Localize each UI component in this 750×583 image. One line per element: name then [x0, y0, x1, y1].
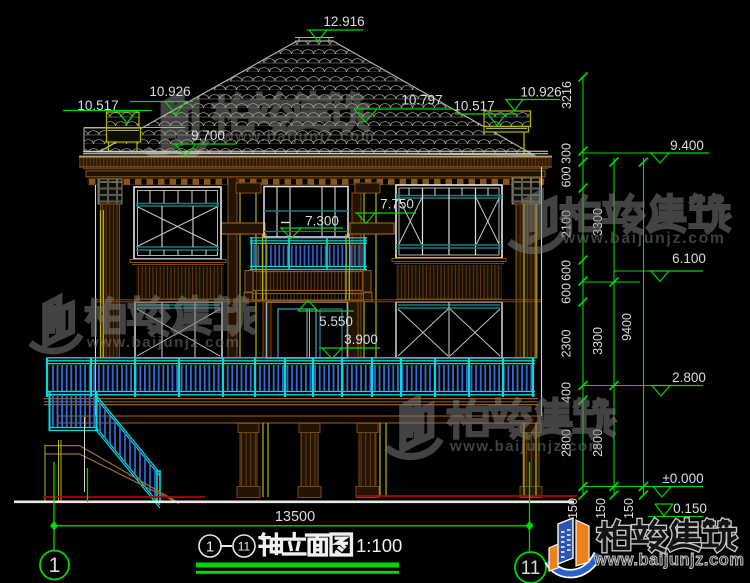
svg-text:±0.000: ±0.000: [662, 471, 703, 486]
svg-text:1: 1: [206, 539, 214, 556]
svg-text:www.baijunjz.com: www.baijunjz.com: [562, 230, 726, 247]
svg-text:600: 600: [560, 167, 574, 188]
svg-text:6.100: 6.100: [672, 251, 706, 266]
svg-text:0.150: 0.150: [673, 501, 707, 516]
svg-text:300: 300: [560, 143, 574, 164]
svg-text:150: 150: [566, 498, 580, 519]
svg-text:150: 150: [594, 498, 608, 519]
svg-text:www.baijunjz.com: www.baijunjz.com: [86, 334, 240, 351]
svg-text:9.400: 9.400: [670, 138, 704, 153]
svg-text:9400: 9400: [620, 313, 634, 341]
svg-text:150: 150: [622, 498, 636, 519]
svg-text:7.300: 7.300: [305, 214, 339, 229]
svg-text:3300: 3300: [591, 327, 605, 355]
svg-text:9.700: 9.700: [191, 128, 225, 143]
svg-text:11: 11: [238, 540, 251, 554]
svg-text:3216: 3216: [560, 81, 574, 109]
svg-text:5.550: 5.550: [319, 314, 353, 329]
svg-text:10.517: 10.517: [77, 98, 118, 113]
svg-text:10.517: 10.517: [453, 99, 494, 114]
svg-text:600: 600: [560, 283, 574, 304]
svg-text:2300: 2300: [560, 330, 574, 358]
svg-text:7.750: 7.750: [380, 197, 414, 212]
svg-text:1:100: 1:100: [356, 535, 402, 556]
svg-text:3.900: 3.900: [344, 332, 378, 347]
svg-text:10.926: 10.926: [149, 84, 190, 99]
svg-text:www.baijunjz.com: www.baijunjz.com: [593, 551, 744, 569]
svg-text:www.baijunjz.com: www.baijunjz.com: [449, 438, 603, 455]
svg-text:10.797: 10.797: [401, 93, 442, 108]
svg-text:2.800: 2.800: [672, 370, 706, 385]
svg-text:10.926: 10.926: [520, 85, 561, 100]
svg-text:1: 1: [49, 554, 61, 577]
svg-text:600: 600: [560, 260, 574, 281]
svg-text:11: 11: [521, 558, 541, 579]
svg-text:13500: 13500: [275, 509, 315, 525]
svg-text:400: 400: [560, 382, 574, 403]
svg-text:12.916: 12.916: [323, 14, 364, 29]
